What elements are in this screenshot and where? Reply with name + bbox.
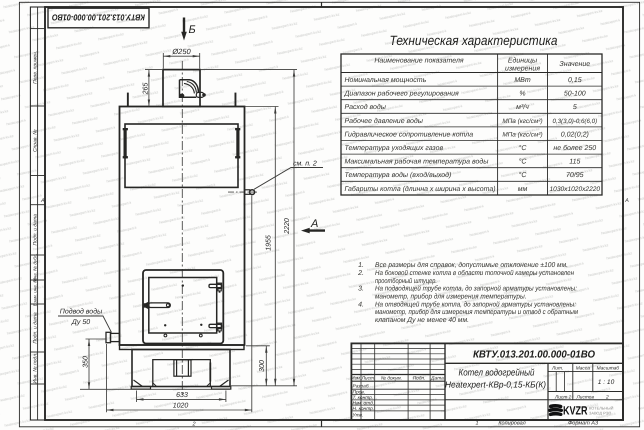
- svg-text:м³/ч: м³/ч: [516, 103, 529, 111]
- svg-text:1.: 1.: [358, 262, 364, 269]
- svg-text:Единицы: Единицы: [508, 57, 538, 65]
- svg-text:Подп. и дата: Подп. и дата: [33, 214, 39, 246]
- svg-text:МПа (кгс/см²): МПа (кгс/см²): [502, 131, 542, 138]
- svg-text:Разраб.: Разраб.: [353, 384, 370, 390]
- svg-text:2: 2: [191, 422, 195, 428]
- svg-text:Т. контр.: Т. контр.: [353, 395, 374, 401]
- svg-text:Изм.: Изм.: [351, 376, 361, 382]
- svg-text:%: %: [519, 91, 525, 98]
- svg-text:Лист: Лист: [361, 376, 374, 382]
- svg-text:Ду 50: Ду 50: [71, 319, 90, 326]
- svg-text:70/95: 70/95: [566, 171, 584, 179]
- svg-text:А: А: [624, 198, 629, 204]
- svg-text:Диапазон рабочего регулировани: Диапазон рабочего регулирования: [344, 90, 460, 98]
- svg-text:Расход воды: Расход воды: [345, 103, 387, 111]
- svg-text:Температура воды (вход/выход): Температура воды (вход/выход): [345, 171, 452, 179]
- svg-text:Габариты котла (длинна х ширин: Габариты котла (длинна х ширина х высота…: [345, 185, 496, 193]
- svg-text:50-100: 50-100: [564, 91, 586, 98]
- svg-text:клапаном Ду не менее 40 мм.: клапаном Ду не менее 40 мм.: [375, 317, 469, 324]
- svg-text:Листов: Листов: [576, 394, 595, 400]
- svg-text:мм: мм: [518, 186, 528, 193]
- svg-text:см. п. 2: см. п. 2: [293, 161, 317, 168]
- svg-text:Лит.: Лит.: [551, 366, 563, 372]
- svg-text:Масса: Масса: [576, 366, 591, 372]
- svg-text:0,02(0,2): 0,02(0,2): [561, 130, 589, 138]
- svg-text:4.: 4.: [358, 301, 364, 308]
- svg-text:633: 633: [176, 392, 188, 399]
- svg-text:Инв. № дубл.: Инв. № дубл.: [33, 253, 38, 281]
- svg-text:Температура уходящих газов: Температура уходящих газов: [345, 144, 444, 152]
- svg-text:Копировал: Копировал: [498, 421, 525, 427]
- svg-text:А: А: [40, 198, 45, 204]
- svg-text:1: 1: [569, 394, 572, 400]
- svg-text:Пров.: Пров.: [353, 390, 366, 396]
- svg-text:Подп.: Подп.: [413, 376, 426, 382]
- svg-text:115: 115: [569, 159, 580, 166]
- svg-text:5: 5: [573, 104, 577, 111]
- svg-text:Формат А3: Формат А3: [568, 421, 599, 427]
- svg-text:Все размеры для справок, допус: Все размеры для справок, допустимые откл…: [375, 261, 568, 269]
- svg-text:2220: 2220: [284, 218, 291, 235]
- svg-text:1955: 1955: [266, 235, 273, 251]
- svg-text:1030х1020х2220: 1030х1020х2220: [549, 186, 600, 193]
- svg-text:Значение: Значение: [559, 61, 590, 68]
- svg-text:Перв. примен.: Перв. примен.: [33, 51, 39, 84]
- svg-text:Подвод воды: Подвод воды: [60, 308, 103, 316]
- svg-text:1 : 10: 1 : 10: [598, 379, 615, 386]
- svg-text:1020: 1020: [173, 403, 189, 410]
- svg-text:КВТУ.013.201.00.000-01ВО: КВТУ.013.201.00.000-01ВО: [473, 350, 595, 361]
- svg-text:Heatexpert-КВр-0,15-КБ(К): Heatexpert-КВр-0,15-КБ(К): [445, 380, 546, 390]
- svg-text:Гидравлическое сопротивление к: Гидравлическое сопротивление котла: [345, 130, 474, 138]
- svg-text:Подп. и дата: Подп. и дата: [33, 312, 39, 344]
- svg-text:На подводящей трубе котла, до: На подводящей трубе котла, до запорной а…: [375, 285, 577, 293]
- svg-text:На отводящей трубе котла, до з: На отводящей трубе котла, до запорной ар…: [375, 300, 576, 308]
- svg-text:Номинальная мощность: Номинальная мощность: [345, 77, 427, 84]
- svg-text:Нач. отд.: Нач. отд.: [353, 401, 375, 407]
- svg-text:ЗАВОД РЭП: ЗАВОД РЭП: [589, 411, 611, 416]
- svg-text:Рабочее давление воды: Рабочее давление воды: [345, 117, 424, 125]
- svg-text:Взам. инв. №: Взам. инв. №: [33, 278, 38, 306]
- svg-text:°С: °С: [519, 159, 528, 166]
- svg-text:Техническая характеристика: Техническая характеристика: [390, 33, 558, 48]
- svg-text:Б: Б: [189, 24, 196, 36]
- svg-text:КВТУ.013.201.00.000-01ВО: КВТУ.013.201.00.000-01ВО: [52, 12, 145, 22]
- svg-text:°С: °С: [519, 172, 528, 179]
- svg-text:МВт: МВт: [514, 77, 531, 84]
- svg-text:2.: 2.: [357, 270, 364, 277]
- svg-text:300: 300: [259, 360, 266, 372]
- svg-text:Утв.: Утв.: [353, 413, 364, 419]
- svg-text:А: А: [310, 218, 318, 230]
- svg-text:манометр, прибор для измерения: манометр, прибор для измерения температу…: [375, 293, 527, 301]
- svg-text:проотборный штуцер.: проотборный штуцер.: [375, 277, 437, 285]
- svg-text:265: 265: [142, 83, 149, 96]
- svg-text:Масштаб: Масштаб: [597, 366, 620, 372]
- svg-text:МПа (кгс/см²): МПа (кгс/см²): [502, 118, 542, 125]
- svg-text:Максимальная рабочая температу: Максимальная рабочая температура воды: [345, 158, 490, 166]
- svg-text:не более 250: не более 250: [553, 144, 596, 152]
- svg-text:Инв. № подл.: Инв. № подл.: [33, 352, 39, 383]
- svg-text:350: 350: [82, 356, 89, 368]
- svg-text:Справ. №: Справ. №: [33, 129, 39, 152]
- svg-text:Дата: Дата: [430, 376, 444, 382]
- svg-text:°С: °С: [519, 145, 528, 152]
- svg-text:№ докум.: № докум.: [381, 376, 402, 382]
- svg-text:1: 1: [475, 421, 478, 427]
- svg-text:Ø250: Ø250: [171, 47, 191, 56]
- svg-text:На боковой стенке котла в обла: На боковой стенке котла в области топочн…: [375, 269, 574, 277]
- svg-text:Лист: Лист: [554, 394, 567, 400]
- svg-text:0,3(3,0)-0,6(6,0): 0,3(3,0)-0,6(6,0): [552, 118, 597, 125]
- svg-text:Н. контр.: Н. контр.: [353, 406, 375, 412]
- svg-text:2: 2: [605, 394, 609, 400]
- svg-text:Наименование показателя: Наименование показателя: [374, 58, 464, 65]
- svg-text:KVZR: KVZR: [563, 404, 588, 418]
- svg-text:3.: 3.: [358, 286, 364, 293]
- svg-text:манометр, прибор для измерения: манометр, прибор для измерения температу…: [375, 308, 578, 316]
- svg-text:0,15: 0,15: [568, 77, 582, 84]
- svg-text:измерения: измерения: [505, 66, 540, 73]
- svg-text:Котел водогрейный: Котел водогрейный: [459, 368, 536, 379]
